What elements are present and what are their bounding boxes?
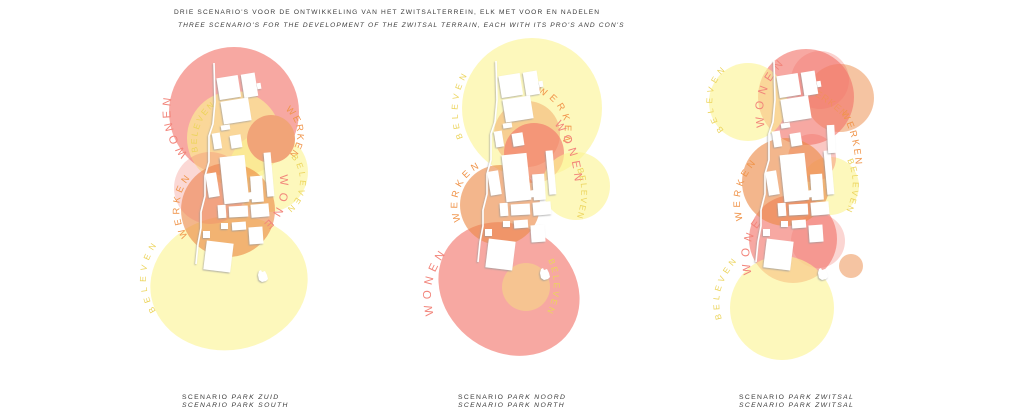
svg-text:SCENARIO PARK NORTH: SCENARIO PARK NORTH [458,402,565,409]
svg-text:SCENARIO PARK NOORD: SCENARIO PARK NOORD [458,394,566,401]
svg-text:DRIE SCENARIO'S VOOR DE ONTWIK: DRIE SCENARIO'S VOOR DE ONTWIKKELING VAN… [174,9,600,16]
svg-text:SCENARIO PARK ZUID: SCENARIO PARK ZUID [182,394,279,401]
svg-text:SCENARIO PARK ZWITSAL: SCENARIO PARK ZWITSAL [739,394,854,401]
svg-text:SCENARIO PARK ZWITSAL: SCENARIO PARK ZWITSAL [739,402,854,409]
svg-text:SCENARIO PARK SOUTH: SCENARIO PARK SOUTH [182,402,289,409]
svg-text:THREE SCENARIO'S FOR THE DEVEL: THREE SCENARIO'S FOR THE DEVELOPMENT OF … [178,22,625,29]
